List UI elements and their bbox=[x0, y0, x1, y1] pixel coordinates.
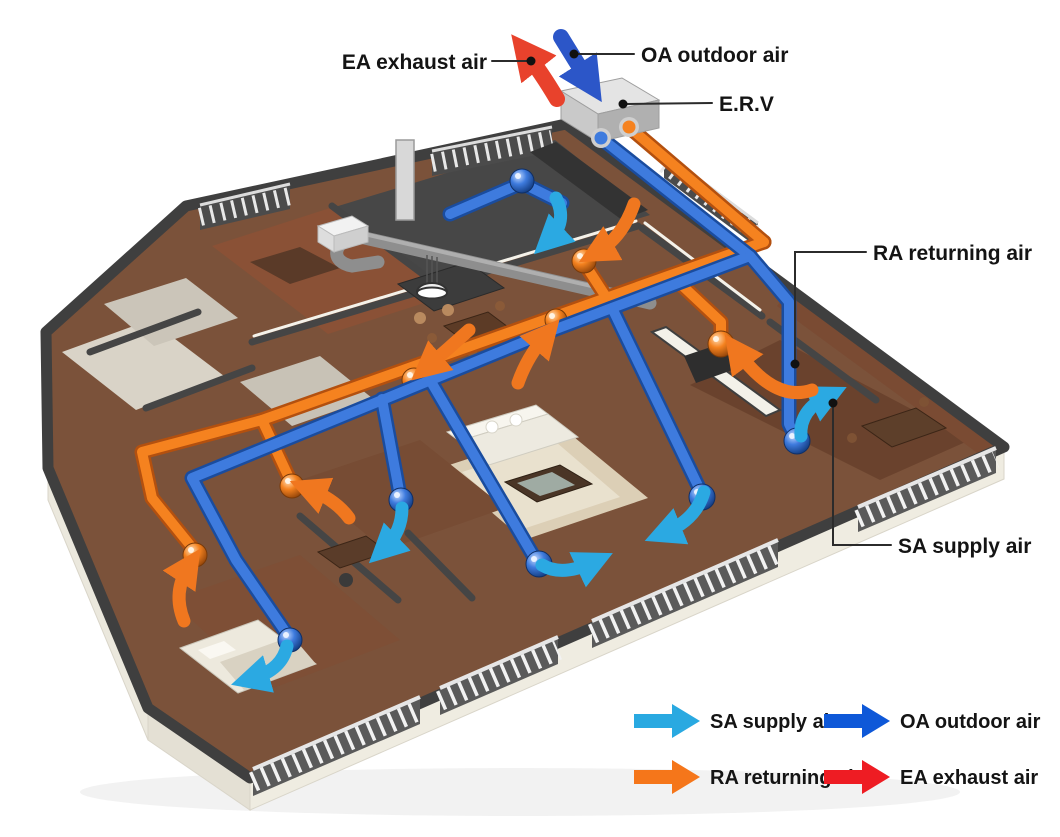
office-chair bbox=[339, 573, 353, 587]
legend-label: SA supply air bbox=[710, 711, 837, 733]
return-diffuser bbox=[280, 474, 304, 498]
legend-label: EA exhaust air bbox=[900, 767, 1038, 789]
vent-chimney bbox=[396, 140, 414, 220]
oa-outdoor-label: OA outdoor air bbox=[641, 44, 788, 67]
sa-supply-label: SA supply air bbox=[898, 535, 1031, 558]
diagram-canvas: EA exhaust air OA outdoor air E.R.V RA r… bbox=[0, 0, 1060, 837]
building bbox=[46, 124, 1004, 816]
legend-label: OA outdoor air bbox=[900, 711, 1041, 733]
ea-exhaust-label: EA exhaust air bbox=[342, 51, 487, 74]
legend-item-oa: OA outdoor air bbox=[824, 704, 1041, 738]
arrow-right-icon bbox=[634, 704, 700, 738]
erv-label: E.R.V bbox=[719, 93, 774, 116]
supply-diffuser bbox=[510, 169, 534, 193]
label-oa-outdoor: OA outdoor air bbox=[570, 44, 789, 67]
ra-returning-label: RA returning air bbox=[873, 242, 1032, 265]
erv-ventilation-diagram: EA exhaust air OA outdoor air E.R.V RA r… bbox=[0, 0, 1060, 837]
label-ea-exhaust: EA exhaust air bbox=[342, 51, 536, 74]
oa-outdoor-arrow-icon bbox=[561, 37, 589, 82]
legend-item-sa: SA supply air bbox=[634, 704, 837, 738]
return-diffuser bbox=[708, 331, 734, 357]
